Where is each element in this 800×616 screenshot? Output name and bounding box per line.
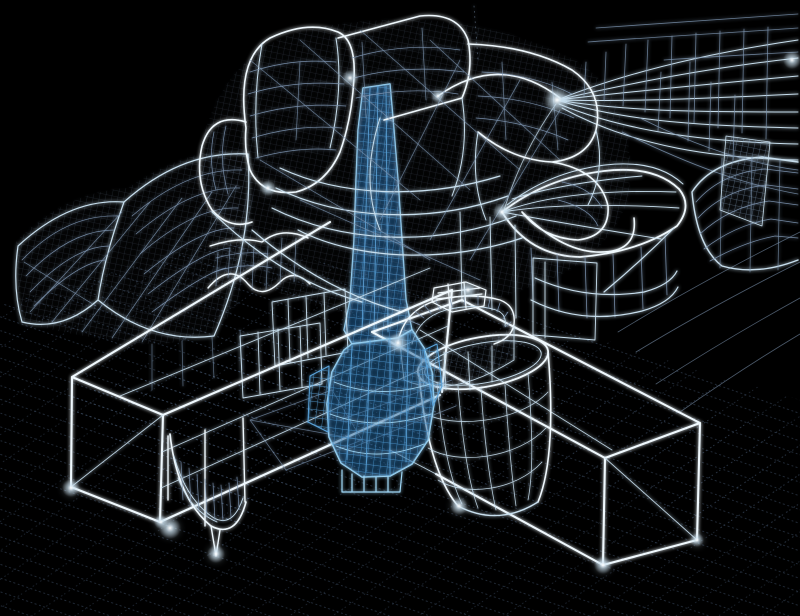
glow-node-cluster-left (260, 180, 276, 196)
glow-node-rightbox-corner2 (690, 533, 704, 547)
glow-node-boat-tip (493, 203, 511, 221)
glow-node-ribbon-origin (544, 87, 570, 113)
glow-node-leftbox-corner (62, 479, 80, 497)
glow-node-leftbox-corner2 (154, 515, 168, 529)
wireframe-render-stage (0, 0, 800, 616)
glow-node-rightbox-corner (594, 556, 612, 574)
mesh-panel-top-right (720, 136, 770, 226)
tower-boot-tint (327, 330, 434, 477)
wireframe-canvas (0, 0, 800, 616)
glow-node-cluster-top (342, 70, 358, 86)
tower-left-flap (308, 366, 329, 432)
glow-node-cluster-base (460, 282, 476, 298)
glow-node-crown-arc (431, 89, 445, 103)
glow-node-annex-spike (207, 545, 225, 563)
glow-node-crown-edge (388, 333, 408, 353)
glow-node-rotunda-base (450, 497, 468, 515)
